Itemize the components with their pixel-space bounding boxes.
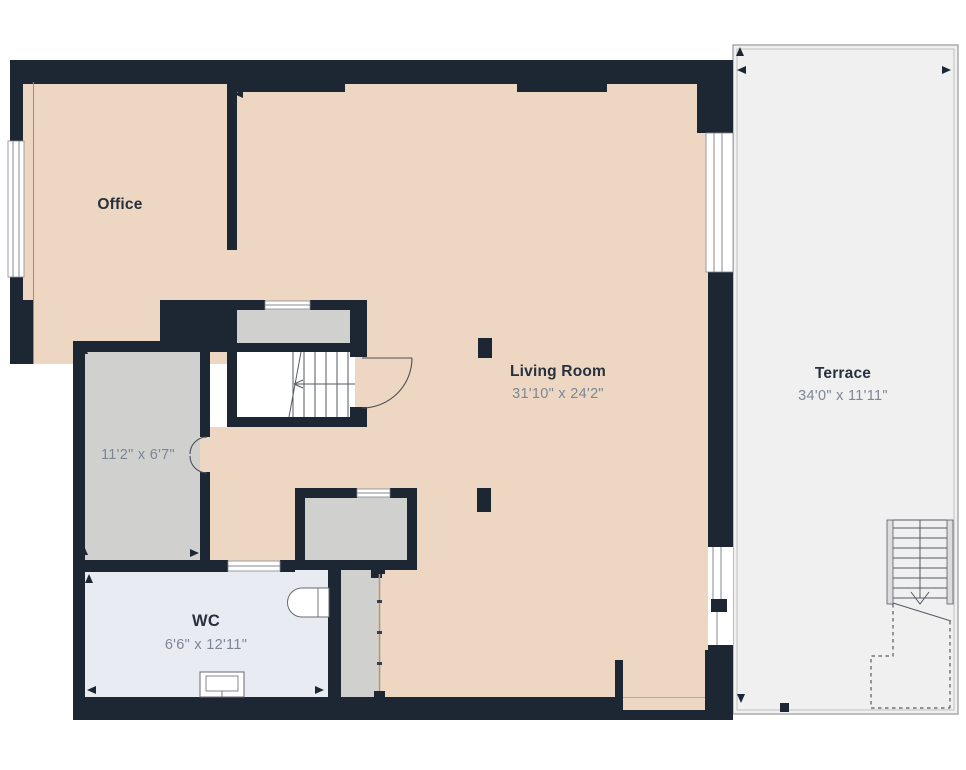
hallway-dims: 11'2" x 6'7" <box>101 447 175 463</box>
floorplan-drawing: Office Living Room 31'10" x 24'2" Terrac… <box>0 0 966 770</box>
terrace-post <box>780 703 789 712</box>
living-room-window <box>706 133 733 272</box>
living-room-dims: 31'10" x 24'2" <box>512 386 604 402</box>
door-opening-floor <box>200 437 210 472</box>
wc-label: WC <box>192 612 220 630</box>
living-room-label: Living Room <box>510 363 606 380</box>
corridor-floor <box>341 570 378 697</box>
column <box>477 488 491 512</box>
closet-lower-floor <box>305 496 407 563</box>
terrace-label: Terrace <box>815 365 871 382</box>
column <box>478 338 492 358</box>
floorplan-page: Office Living Room 31'10" x 24'2" Terrac… <box>0 0 966 770</box>
terrace-dims: 34'0" x 11'11" <box>798 388 888 404</box>
wc-dims: 6'6" x 12'11" <box>165 637 247 653</box>
bottom-recess-floor <box>623 697 705 710</box>
pocket-floor <box>210 427 237 570</box>
closet-top-floor <box>237 308 355 345</box>
office-label: Office <box>97 196 142 213</box>
bathtub <box>288 588 330 617</box>
office-window <box>8 141 24 277</box>
terrace-sliding-door <box>708 547 733 645</box>
